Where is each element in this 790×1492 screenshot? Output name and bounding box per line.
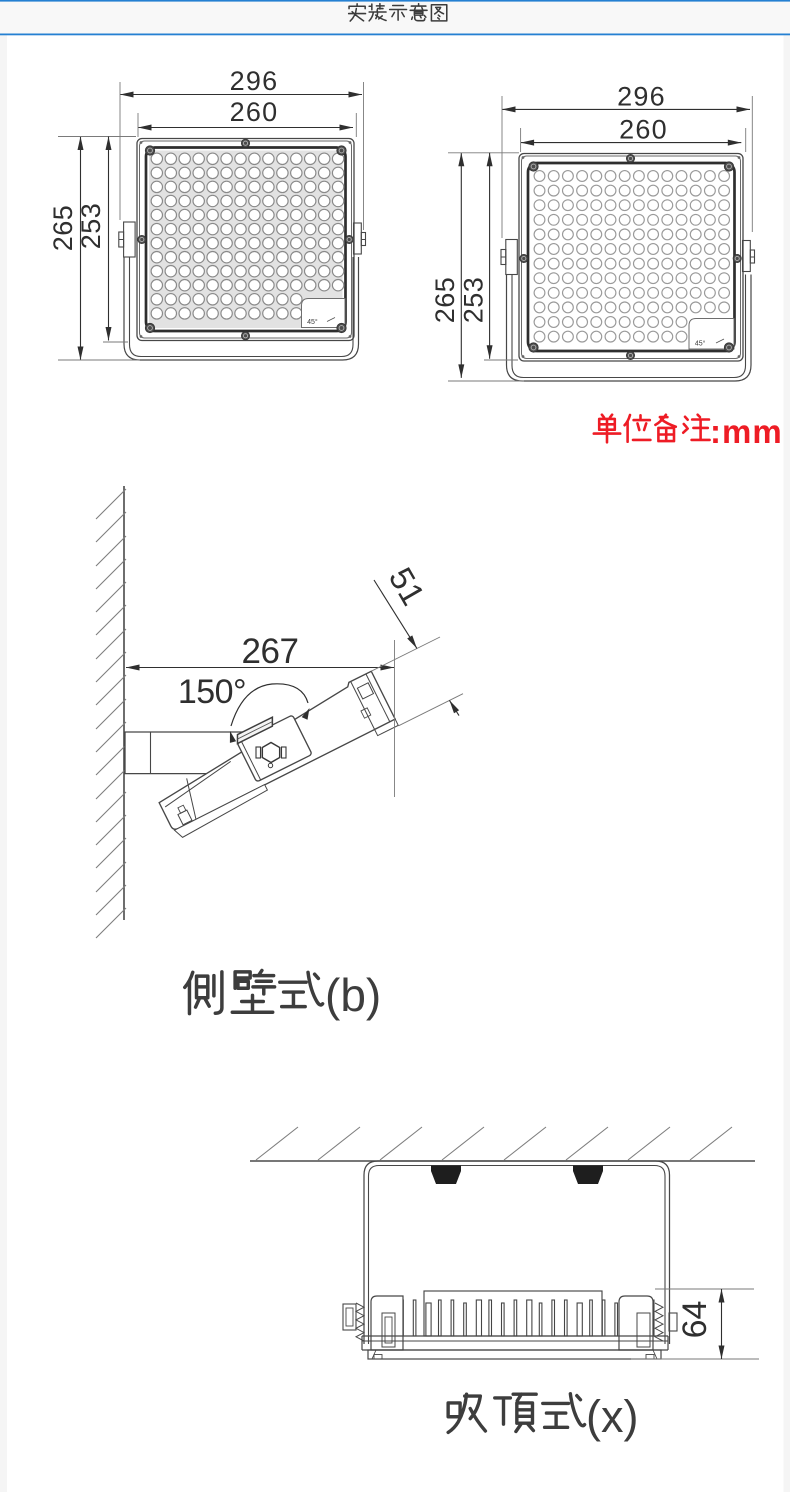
svg-text:64: 64 <box>676 1301 714 1339</box>
svg-text:45°: 45° <box>695 340 706 348</box>
svg-text:253: 253 <box>459 277 489 324</box>
svg-text:(x): (x) <box>586 1391 638 1442</box>
svg-text:296: 296 <box>617 82 666 112</box>
svg-text:296: 296 <box>230 66 279 96</box>
svg-text:150°: 150° <box>178 673 246 711</box>
svg-text:253: 253 <box>76 203 106 250</box>
svg-text::mm: :mm <box>710 413 783 450</box>
svg-text:260: 260 <box>230 97 279 127</box>
svg-text:(b): (b) <box>325 969 381 1021</box>
svg-text:260: 260 <box>619 115 668 145</box>
svg-text:265: 265 <box>48 205 78 252</box>
svg-text:265: 265 <box>430 277 460 324</box>
svg-text:45°: 45° <box>307 318 318 326</box>
svg-text:267: 267 <box>242 632 299 671</box>
